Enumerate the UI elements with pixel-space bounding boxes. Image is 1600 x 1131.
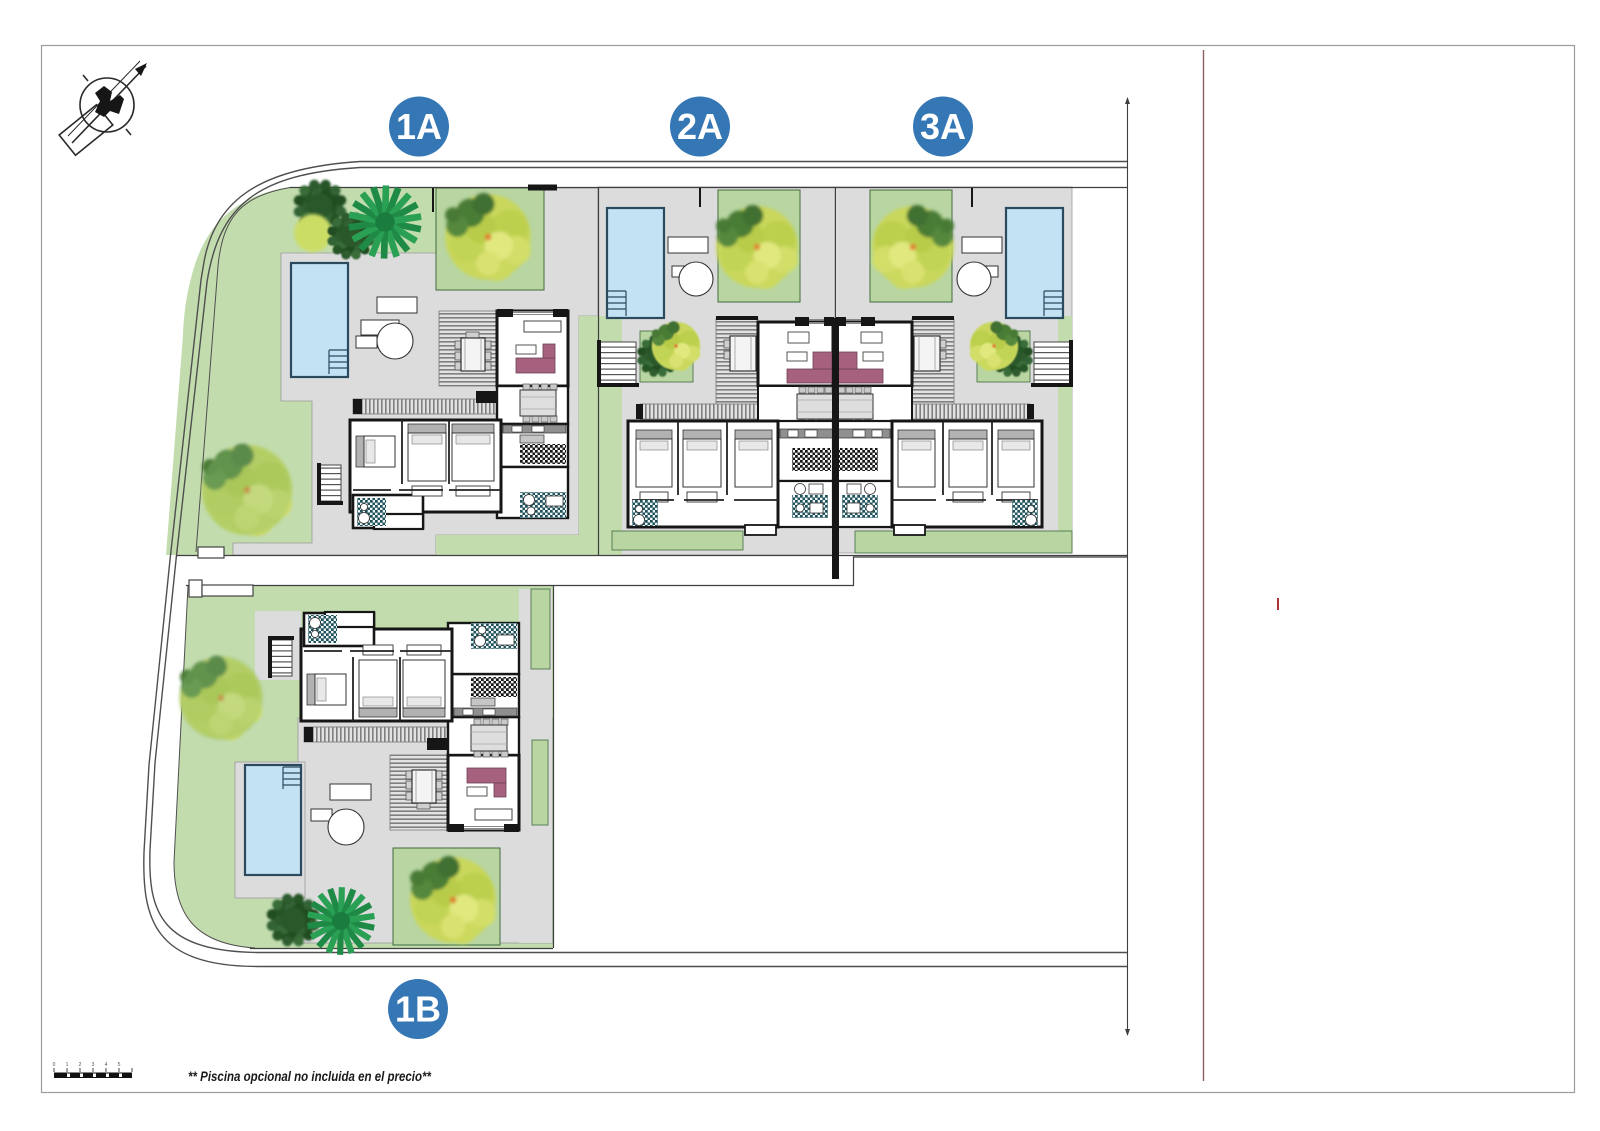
svg-text:1A: 1A [396,106,442,147]
svg-text:** Piscina opcional no incluid: ** Piscina opcional no incluida en el pr… [188,1068,431,1084]
svg-text:2: 2 [79,1062,82,1068]
svg-text:1: 1 [66,1062,69,1068]
svg-text:0: 0 [53,1062,56,1068]
svg-text:2A: 2A [677,106,723,147]
svg-text:5: 5 [118,1062,121,1068]
svg-text:3A: 3A [920,106,966,147]
svg-text:1B: 1B [395,989,441,1030]
svg-text:4: 4 [105,1062,108,1068]
svg-text:3: 3 [92,1062,95,1068]
